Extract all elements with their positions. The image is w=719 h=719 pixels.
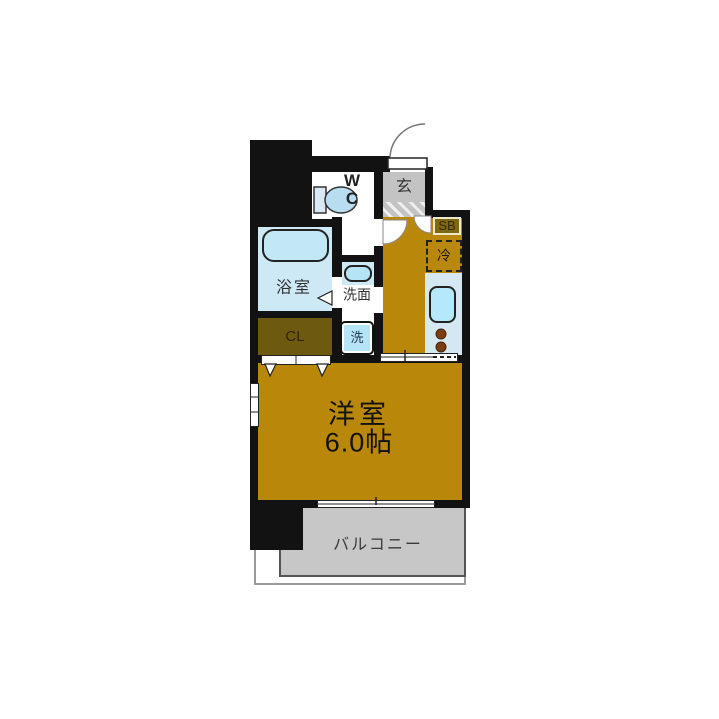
wc-label: W C — [344, 172, 360, 208]
entrance-door-arc — [390, 124, 425, 157]
wc-label-line1: W — [344, 172, 360, 190]
floor-plan: W C 玄 SB 冷 浴室 洗面 洗 CL 洋室 6.0帖 バルコニー — [0, 0, 719, 719]
bathroom-label: 浴室 — [276, 281, 312, 298]
wc-label-line2: C — [344, 190, 360, 208]
burner-icon — [436, 329, 446, 339]
main-room-name: 洋室 — [325, 401, 394, 429]
main-room-label: 洋室 6.0帖 — [325, 401, 394, 458]
toilet-tank-icon — [314, 187, 326, 213]
wc-door-arc — [383, 220, 407, 244]
entrance-door-leaf — [388, 158, 427, 169]
genkan-door-arc — [414, 216, 431, 233]
refrigerator-label: 冷 — [437, 249, 451, 264]
bathroom-door-marker — [318, 291, 332, 305]
washroom-label: 洗面 — [343, 288, 371, 303]
shoe-box-label: SB — [438, 219, 455, 233]
washer-label: 洗 — [350, 331, 363, 345]
closet-door-marker — [317, 364, 328, 376]
balcony-label: バルコニー — [333, 538, 423, 555]
main-room-size: 6.0帖 — [325, 429, 394, 457]
closet-label: CL — [285, 329, 304, 345]
plan-annotations — [0, 0, 719, 719]
burner-icon — [436, 342, 446, 352]
closet-door-marker — [265, 364, 276, 376]
entrance-label: 玄 — [396, 180, 412, 197]
